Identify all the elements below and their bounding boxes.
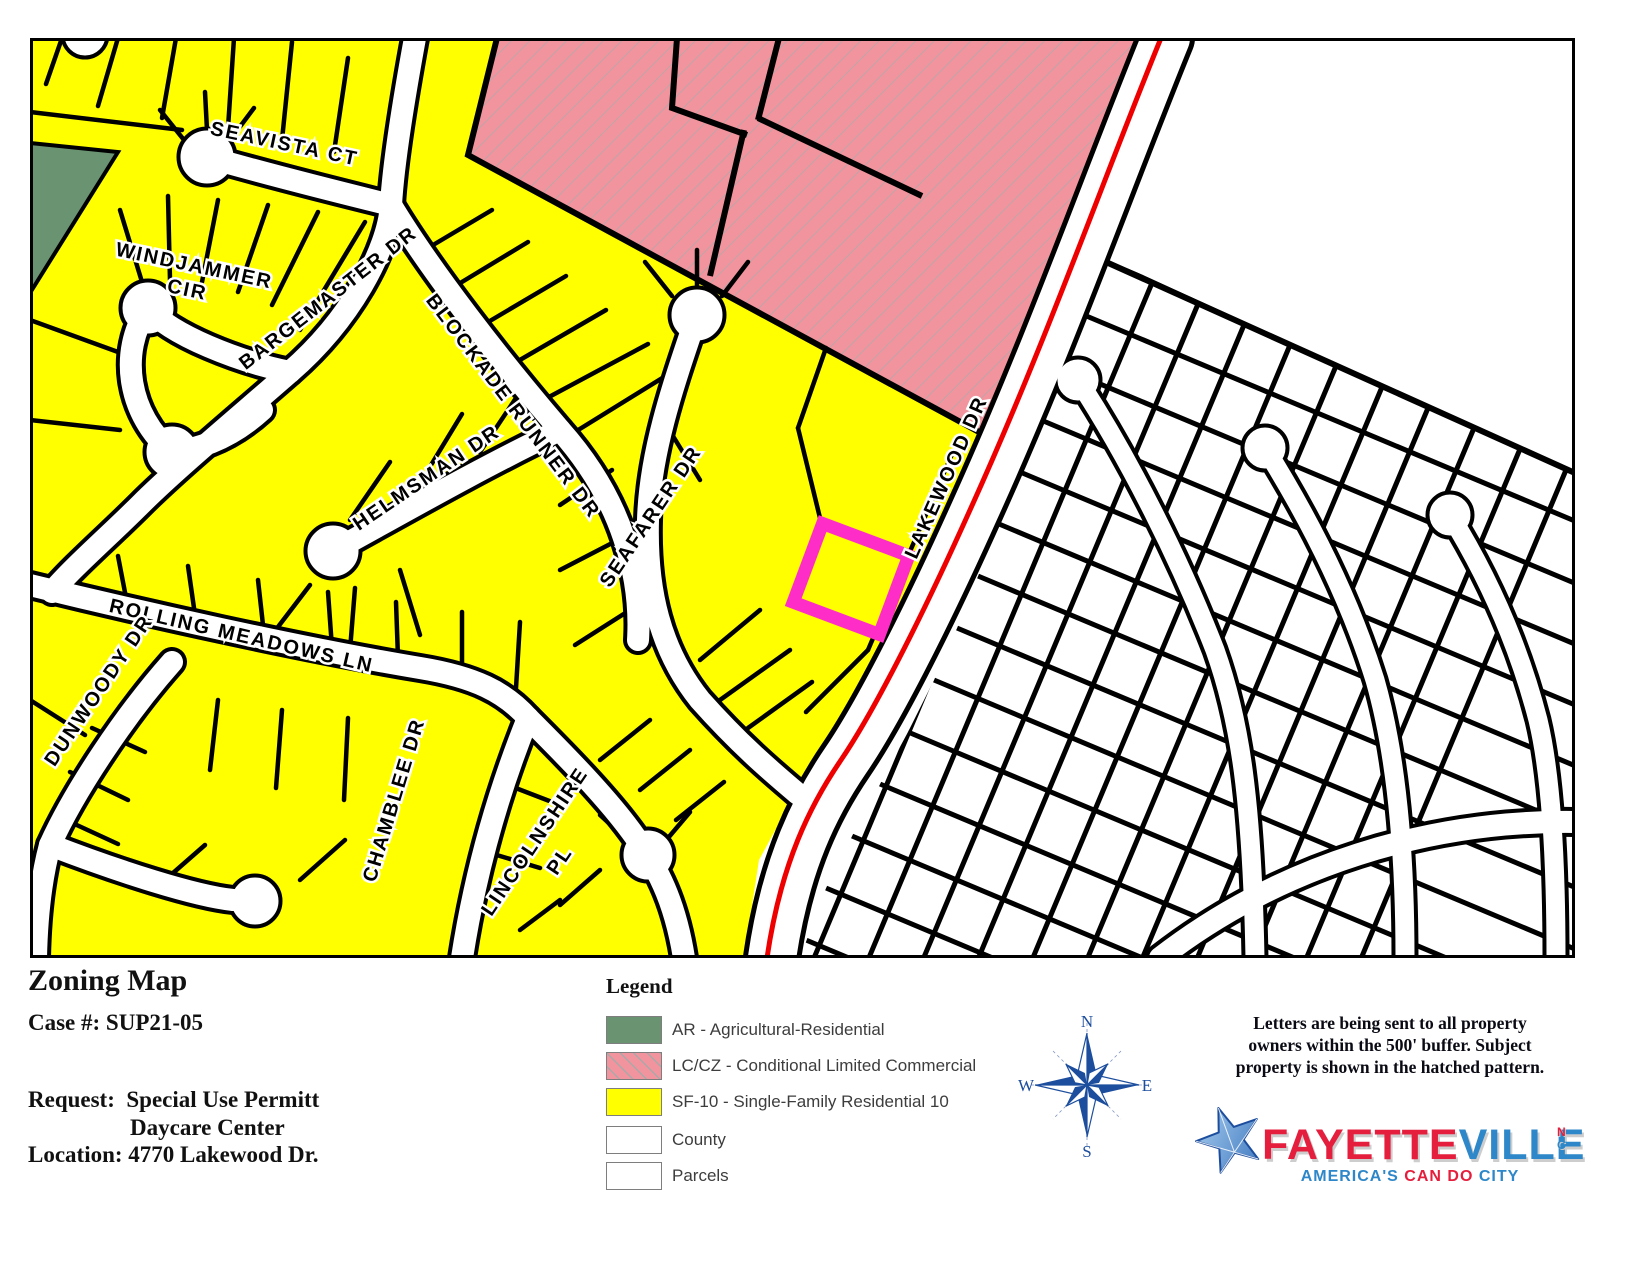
compass-east-label: E: [1142, 1076, 1152, 1095]
legend-swatch-sf10: [606, 1088, 662, 1116]
legend-label-ar: AR - Agricultural-Residential: [672, 1020, 885, 1040]
buffer-note: Letters are being sent to all property o…: [1205, 1012, 1575, 1078]
compass-north-label: N: [1081, 1012, 1093, 1031]
legend-item-lccz: LC/CZ - Conditional Limited Commercial: [606, 1052, 976, 1080]
city-logo-star-icon: [1190, 1100, 1270, 1180]
buffer-note-line1: Letters are being sent to all property: [1205, 1012, 1575, 1034]
logo-state-c: C: [1557, 1139, 1566, 1152]
buffer-note-line3: property is shown in the hatched pattern…: [1205, 1056, 1575, 1078]
legend-label-lccz: LC/CZ - Conditional Limited Commercial: [672, 1056, 976, 1076]
city-logo-tagline: AMERICA'S CAN DO CITY: [1262, 1168, 1558, 1186]
compass-star: [1035, 1033, 1139, 1137]
request-line: Request: Special Use Permitt: [28, 1087, 319, 1113]
page-title: Zoning Map: [28, 964, 187, 998]
request-label: Request:: [28, 1087, 115, 1112]
legend-item-sf10: SF-10 - Single-Family Residential 10: [606, 1088, 949, 1116]
legend-item-ar: AR - Agricultural-Residential: [606, 1016, 885, 1044]
legend-swatch-parcels: [606, 1162, 662, 1190]
city-logo-state: N C: [1557, 1126, 1566, 1152]
request-value-line2: Daycare Center: [130, 1115, 285, 1141]
zoning-map: SEAVISTA CT WINDJAMMER CIR BARGEMASTER D…: [0, 0, 1650, 1275]
legend-label-parcels: Parcels: [672, 1166, 729, 1186]
legend-item-parcels: Parcels: [606, 1162, 729, 1190]
compass-rose: N E S W: [1007, 1005, 1167, 1165]
tagline-americas: AMERICA'S: [1301, 1168, 1405, 1185]
legend-label-county: County: [672, 1130, 726, 1150]
legend-swatch-county: [606, 1126, 662, 1154]
buffer-note-line2: owners within the 500' buffer. Subject: [1205, 1034, 1575, 1056]
request-value: Special Use Permitt: [126, 1087, 319, 1112]
legend-title: Legend: [606, 974, 673, 999]
location-line: Location: 4770 Lakewood Dr.: [28, 1142, 319, 1168]
compass-west-label: W: [1018, 1076, 1035, 1095]
compass-south-label: S: [1082, 1142, 1091, 1161]
tagline-city: CITY: [1479, 1168, 1519, 1185]
case-number: Case #: SUP21-05: [28, 1010, 203, 1036]
legend-swatch-lccz: [606, 1052, 662, 1080]
logo-ville: VILLE: [1459, 1121, 1586, 1169]
legend-item-county: County: [606, 1126, 726, 1154]
city-logo-wordmark: FAYETTEVILLE: [1262, 1121, 1585, 1170]
tagline-can-do: CAN DO: [1404, 1168, 1479, 1185]
legend-label-sf10: SF-10 - Single-Family Residential 10: [672, 1092, 949, 1112]
logo-fayette: FAYETTE: [1262, 1121, 1459, 1169]
zoning-map-document: SEAVISTA CT WINDJAMMER CIR BARGEMASTER D…: [0, 0, 1650, 1275]
legend-swatch-ar: [606, 1016, 662, 1044]
